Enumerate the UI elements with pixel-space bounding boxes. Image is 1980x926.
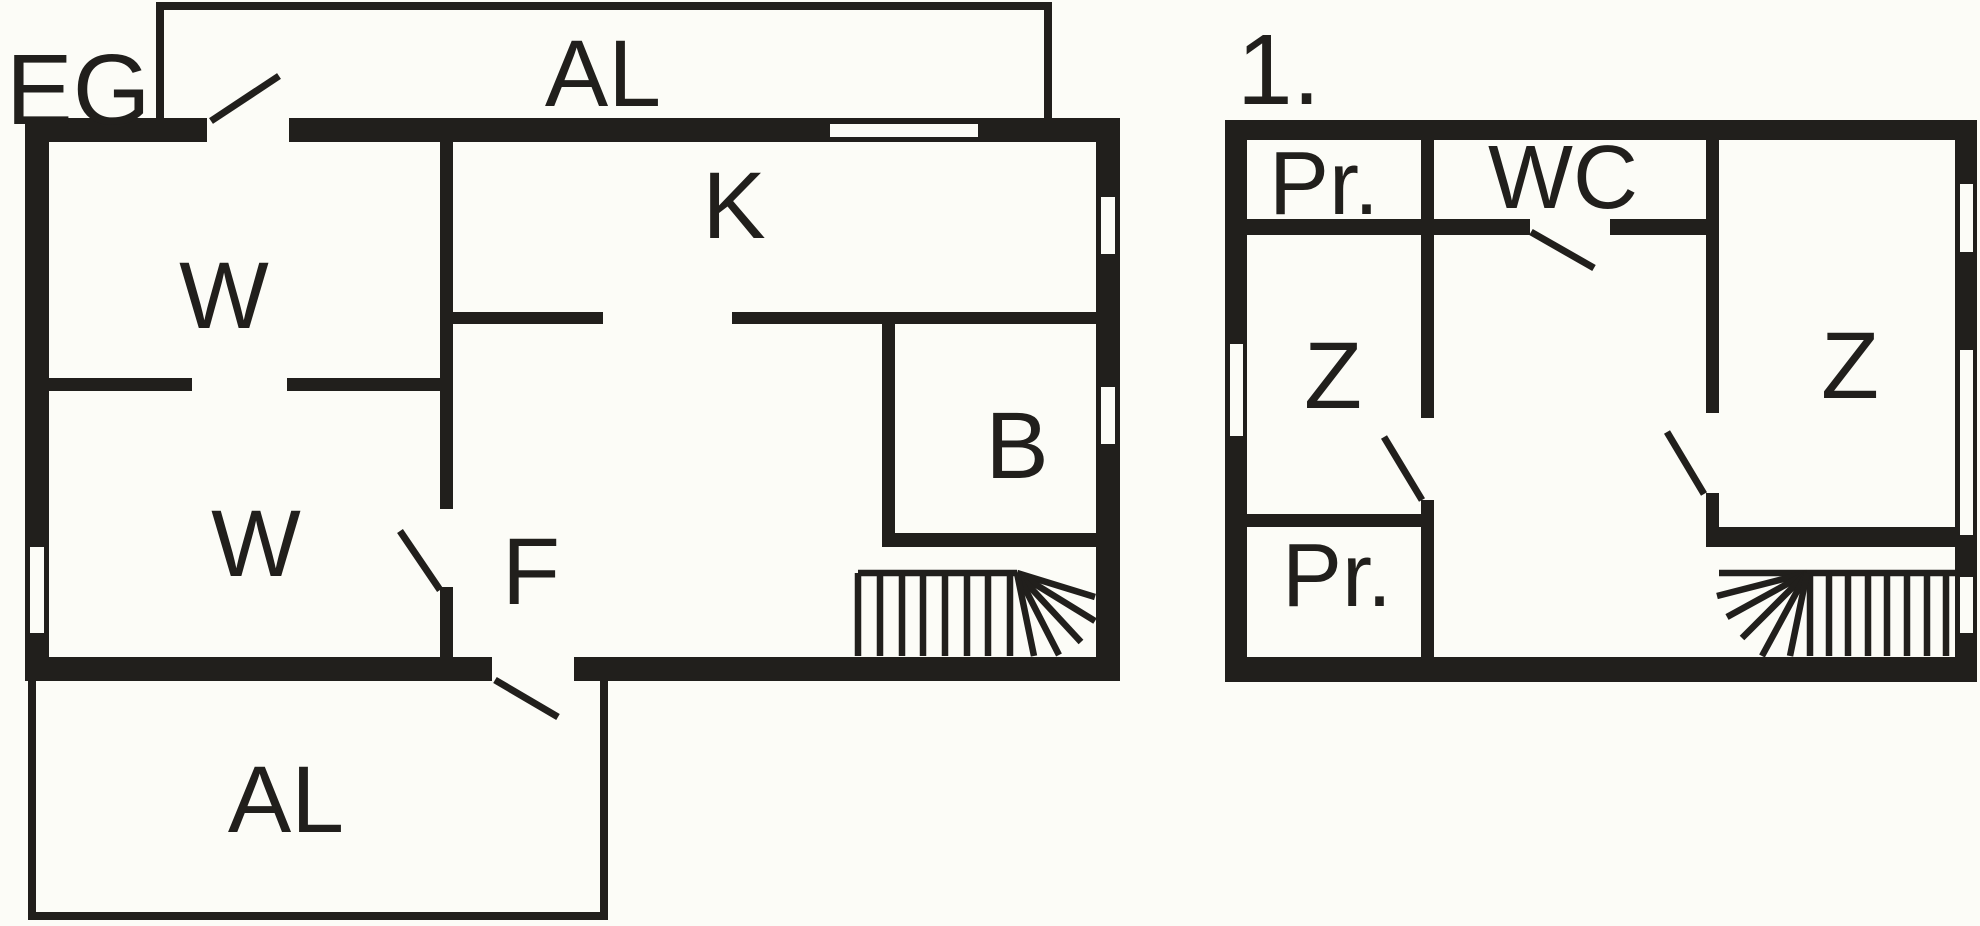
door-swing-bedroom-left xyxy=(1384,437,1422,500)
wall-hall-upper xyxy=(440,142,453,509)
wall-divider2-upper xyxy=(1706,140,1719,413)
door-opening-balcony xyxy=(207,116,289,144)
window-right-upper xyxy=(1960,184,1973,252)
room-label-bedroom-right: Z xyxy=(1821,313,1879,419)
outer-walls-ground xyxy=(25,118,1120,681)
window-left-w-room xyxy=(30,547,44,633)
wall-bathroom-left xyxy=(882,312,895,547)
wall-divider1-lower xyxy=(1421,500,1434,657)
room-label-hallway: F xyxy=(502,519,560,625)
balcony-wall-left xyxy=(156,2,164,118)
balcony-wall-right xyxy=(1044,2,1052,118)
interior-walls-ground xyxy=(49,142,1096,657)
door-swing-balcony xyxy=(211,76,279,121)
room-label-kitchen: K xyxy=(702,153,765,259)
door-swing-terrace xyxy=(495,680,558,717)
window-right-bedroom xyxy=(1960,350,1973,535)
terrace-wall-bottom xyxy=(28,912,608,920)
room-label-bathroom: B xyxy=(985,393,1048,499)
wall-kitchen-hall-right xyxy=(732,312,1096,324)
room-label-wc: WC xyxy=(1488,128,1638,228)
floor-plan-drawing: EG AL W K W F B AL xyxy=(0,0,1980,926)
wall-kitchen-hall-stub xyxy=(453,312,603,324)
terrace-wall-left xyxy=(28,681,36,920)
first-floor-plan: 1. Pr. WC Z Z Pr. xyxy=(1225,14,1977,682)
wall-w-divider-left xyxy=(49,378,192,391)
wall-w-divider-right xyxy=(287,378,440,391)
window-left-bedroom xyxy=(1230,344,1243,436)
terrace-wall-right xyxy=(600,681,608,920)
ground-floor-plan: EG AL W K W F B AL xyxy=(6,2,1120,920)
floor-plan-canvas: EG AL W K W F B AL xyxy=(0,0,1980,926)
room-label-w-lower: W xyxy=(211,491,301,597)
room-label-closet-top: Pr. xyxy=(1269,134,1379,234)
floor-title-eg: EG xyxy=(6,34,150,146)
wall-divider1-upper xyxy=(1421,140,1434,418)
wall-hall-lower xyxy=(440,587,453,657)
wall-bedroom-right-bottom xyxy=(1706,527,1955,547)
room-label-w-upper: W xyxy=(179,243,269,349)
door-opening-terrace xyxy=(492,655,574,683)
door-swing-wc xyxy=(1531,232,1594,268)
room-label-balcony-top: AL xyxy=(545,21,661,127)
floor-title-first: 1. xyxy=(1237,14,1320,126)
room-label-terrace: AL xyxy=(228,747,344,853)
wall-bathroom-bottom xyxy=(882,533,1096,547)
window-right-stairs xyxy=(1960,577,1973,633)
door-swing-bedroom-right xyxy=(1667,432,1704,494)
room-label-bedroom-left: Z xyxy=(1304,323,1362,429)
openings-ground xyxy=(30,116,1115,683)
window-top-kitchen xyxy=(830,124,978,137)
door-swing-hallway xyxy=(400,531,440,590)
staircase-first xyxy=(1717,573,1955,656)
window-right-kitchen xyxy=(1101,197,1115,254)
outer-wall-bottom xyxy=(1225,657,1977,682)
room-label-closet-bottom: Pr. xyxy=(1282,526,1392,626)
window-right-bathroom xyxy=(1101,387,1115,444)
staircase-ground xyxy=(858,573,1095,656)
balcony-wall-top xyxy=(156,2,1052,10)
